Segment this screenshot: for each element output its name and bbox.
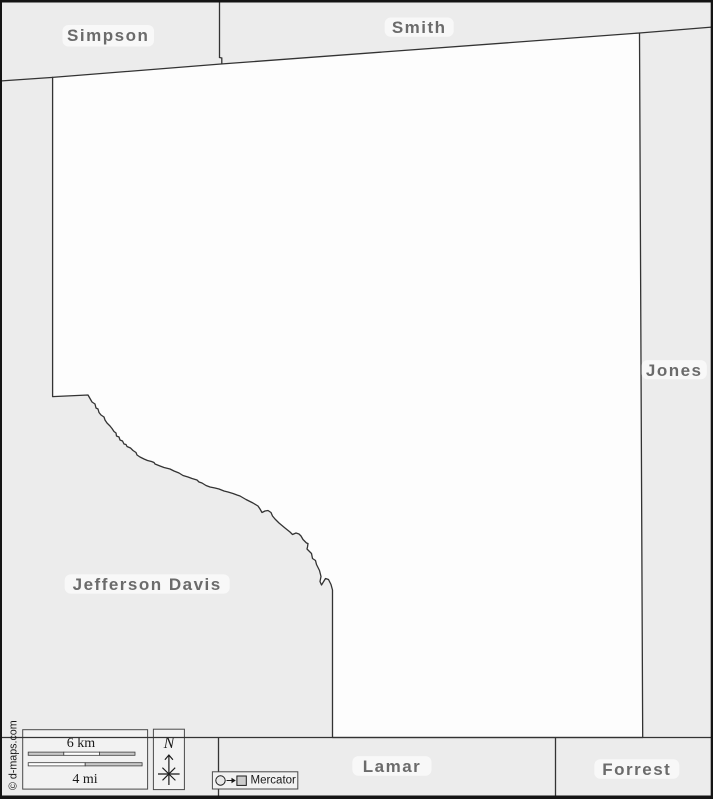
svg-text:© d-maps.com: © d-maps.com xyxy=(8,720,20,790)
svg-text:4 mi: 4 mi xyxy=(72,772,97,787)
svg-text:Smith: Smith xyxy=(392,18,447,37)
svg-text:Jefferson Davis: Jefferson Davis xyxy=(73,575,222,594)
svg-text:Jones: Jones xyxy=(646,361,703,380)
svg-text:Forrest: Forrest xyxy=(602,760,671,779)
svg-text:6 km: 6 km xyxy=(67,736,96,751)
svg-text:Mercator: Mercator xyxy=(251,775,297,787)
svg-text:Simpson: Simpson xyxy=(67,26,149,45)
svg-text:Lamar: Lamar xyxy=(363,757,422,776)
